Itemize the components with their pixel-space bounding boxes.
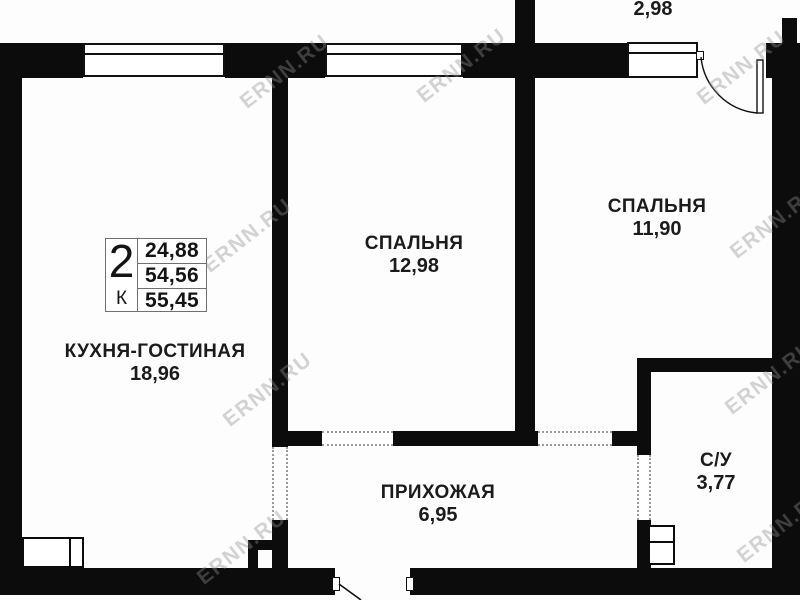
room-name: КУХНЯ-ГОСТИНАЯ	[65, 340, 246, 363]
entrance-door-frame-right	[406, 577, 414, 591]
bedroom2-door-opening	[538, 431, 612, 446]
room-label-bedroom-2: СПАЛЬНЯ 11,90	[608, 195, 707, 241]
kitchen-duct-fixture	[22, 537, 84, 568]
total-area-value: 55,45	[138, 289, 206, 313]
wall-hallway-seg1	[288, 431, 322, 446]
wall-right	[772, 78, 800, 595]
wall-bathroom-top	[637, 358, 772, 372]
bedroom1-door-opening	[322, 431, 393, 446]
wall-bottom-left	[0, 568, 335, 595]
hallway-niche-top	[248, 540, 288, 550]
room-area: 18,96	[65, 363, 246, 386]
rooms-count: 2	[109, 239, 135, 283]
wall-hallway-seg2	[393, 431, 538, 446]
wall-kitchen-upper	[272, 78, 288, 447]
wall-bottom-right	[410, 568, 800, 595]
hallway-niche-left	[248, 550, 258, 568]
room-name: СПАЛЬНЯ	[365, 232, 464, 255]
class-letter: К	[116, 289, 127, 309]
floor-plan: ERNN.RU ERNN.RU ERNN.RU ERNN.RU ERNN.RU …	[0, 0, 800, 600]
balcony-door-frame	[696, 51, 704, 60]
room-name: ПРИХОЖАЯ	[381, 481, 495, 504]
room-label-balcony: 2,98	[634, 0, 673, 19]
wall-left	[0, 43, 22, 595]
window-symbol-bedroom1	[325, 43, 463, 77]
room-area: 11,90	[608, 218, 707, 241]
wall-top-right	[463, 43, 627, 78]
room-label-kitchen-living: КУХНЯ-ГОСТИНАЯ 18,96	[65, 340, 246, 386]
apartment-info-box: 2 К 24,88 54,56 55,45	[105, 238, 207, 312]
balcony-parapet-stub	[782, 18, 797, 43]
wall-top-corner	[766, 43, 800, 78]
room-name: СПАЛЬНЯ	[608, 195, 707, 218]
room-label-hallway: ПРИХОЖАЯ 6,95	[381, 481, 495, 527]
bathroom-door-opening	[637, 455, 651, 520]
room-area: 3,77	[697, 472, 736, 495]
window-symbol-bedroom2	[627, 42, 698, 78]
wall-top-mid	[225, 43, 325, 78]
room-name: С/У	[697, 449, 736, 472]
room-label-bedroom-1: СПАЛЬНЯ 12,98	[365, 232, 464, 278]
kitchen-door-opening	[272, 447, 288, 520]
room-area: 12,98	[365, 255, 464, 278]
entrance-door-frame-left	[332, 577, 340, 591]
area-value: 54,56	[138, 264, 206, 289]
living-area-value: 24,88	[138, 239, 206, 264]
bathroom-shaft-fixture	[648, 525, 675, 565]
window-symbol-kitchen	[83, 43, 225, 77]
wall-bedrooms-divider	[515, 0, 535, 446]
room-label-bathroom: С/У 3,77	[697, 449, 736, 495]
room-area: 6,95	[381, 504, 495, 527]
wall-bathroom-left-upper	[637, 372, 651, 455]
